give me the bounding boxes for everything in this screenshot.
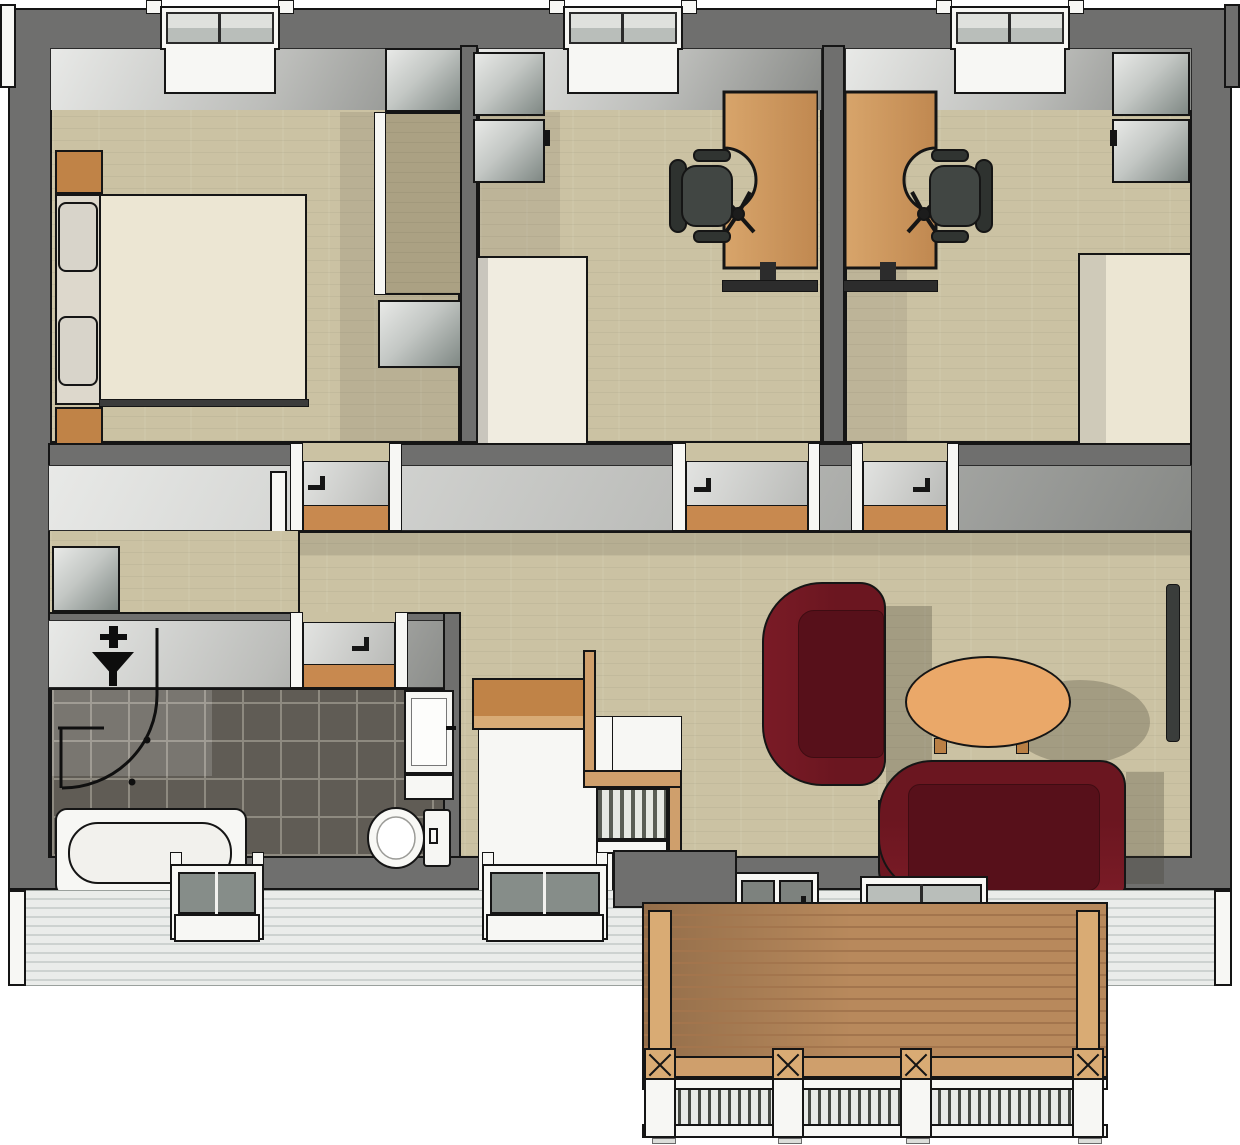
window-mullion (218, 12, 221, 44)
deck-foot (652, 1138, 676, 1144)
office2-cabinet-upper (1112, 52, 1190, 116)
toilet (366, 802, 458, 874)
bay-sill (174, 914, 260, 942)
door-jamb (808, 443, 820, 531)
door-threshold (686, 505, 808, 531)
sofa2-shadow (1126, 772, 1164, 884)
bay-sill (486, 914, 604, 942)
mid-wall-top (48, 443, 1192, 465)
window-mullion (621, 12, 624, 44)
deck-corner-post-right (1076, 910, 1100, 1062)
door-jamb (947, 443, 959, 531)
closet-sliding-track (374, 112, 386, 295)
window-post (1068, 0, 1084, 14)
window-mullion (1008, 12, 1011, 44)
cabinet-handle (543, 130, 550, 146)
handrail-post (583, 650, 596, 776)
deck-cross-brace (1072, 1048, 1104, 1080)
sofa-horizontal-cushion (908, 784, 1100, 891)
door-handle (706, 478, 711, 489)
door-handle (925, 478, 930, 489)
office1-white-dresser (476, 256, 588, 452)
vanity-lower-shelf (404, 774, 454, 800)
pillow (58, 316, 98, 386)
console-shelf (472, 678, 592, 730)
door-threshold (863, 505, 947, 531)
bed-duvet (99, 194, 307, 405)
deck-foot (778, 1138, 802, 1144)
nightstand-top (55, 150, 103, 194)
pillow (58, 202, 98, 272)
door-threshold (303, 664, 395, 688)
wall-office1-office2 (822, 45, 845, 443)
corner-board-left (8, 890, 26, 986)
door-jamb (290, 443, 303, 531)
window-mullion (215, 872, 218, 914)
bed-foot-rail (99, 399, 309, 407)
bedroom-closet-alcove (378, 112, 462, 295)
office2-bed-shade (1080, 255, 1106, 447)
deck-cross-brace (644, 1048, 676, 1080)
door-bathroom (290, 612, 408, 688)
deck-corner-post-left (648, 910, 672, 1062)
window-post (278, 0, 294, 14)
vanity-sink-basin (411, 698, 447, 766)
office2-desk-leg-stem (880, 262, 896, 282)
door-handle (320, 476, 325, 487)
sofa-vertical-cushion (798, 610, 884, 758)
deck-rail-post (772, 1078, 804, 1138)
corner-trim-top-right (1224, 4, 1240, 88)
deck-foot (906, 1138, 930, 1144)
washing-machine (52, 546, 120, 612)
floor-plan-render (0, 0, 1240, 1145)
deck-foot (1078, 1138, 1102, 1144)
door-jamb (395, 612, 408, 688)
deck-cross-brace (900, 1048, 932, 1080)
deck-rail-post (644, 1078, 676, 1138)
bedroom-dresser (378, 300, 462, 368)
cabinet-handle (1110, 130, 1117, 146)
deck-rail-bottom (642, 1124, 1108, 1138)
door-jamb (672, 443, 686, 531)
sink-faucet-icon (446, 726, 456, 730)
deck-rail-beam (642, 1056, 1108, 1078)
stair-balusters (596, 788, 668, 840)
bedroom-upper-cabinet (385, 48, 462, 112)
deck-floor (642, 902, 1108, 1062)
door-leaf (863, 461, 947, 511)
door-handle (364, 637, 369, 648)
deck-rail-post (1072, 1078, 1104, 1138)
bay-window-1 (170, 852, 264, 964)
office1-cabinet-upper (473, 52, 545, 116)
office2-desk-leg-bar (843, 280, 938, 292)
bay-window-2 (482, 852, 608, 964)
office1-office-chair (664, 140, 756, 252)
door-leaf (303, 622, 395, 668)
corner-board-right (1214, 890, 1232, 986)
deck-cross-brace (772, 1048, 804, 1080)
top-window-2-sill (567, 48, 679, 94)
entry-wall-block (613, 850, 737, 908)
window-mullion (543, 872, 546, 914)
door-office1 (672, 443, 820, 531)
top-window-3-sill (954, 48, 1066, 94)
coffee-table (905, 656, 1071, 748)
door-jamb (290, 612, 303, 688)
door-bedroom (290, 443, 402, 531)
corner-trim-top-left (0, 4, 16, 88)
office2-cabinet-lower (1112, 119, 1190, 183)
door-office2 (851, 443, 959, 531)
top-window-1-sill (164, 48, 276, 94)
shower-enclosure (50, 620, 210, 800)
office1-desk-leg-stem (760, 262, 776, 282)
deck-balusters (646, 1088, 1104, 1126)
mid-wall-face (48, 465, 1192, 531)
door-jamb (851, 443, 863, 531)
office1-desk-leg-bar (722, 280, 818, 292)
door-leaf (686, 461, 808, 511)
office2-office-chair (906, 140, 998, 252)
door-threshold (303, 505, 389, 531)
radiator (1166, 584, 1180, 742)
console-front-face (474, 716, 590, 728)
office1-cabinet-lower (473, 119, 545, 183)
window-post (681, 0, 697, 14)
door-jamb (389, 443, 402, 531)
deck-rail-post (900, 1078, 932, 1138)
